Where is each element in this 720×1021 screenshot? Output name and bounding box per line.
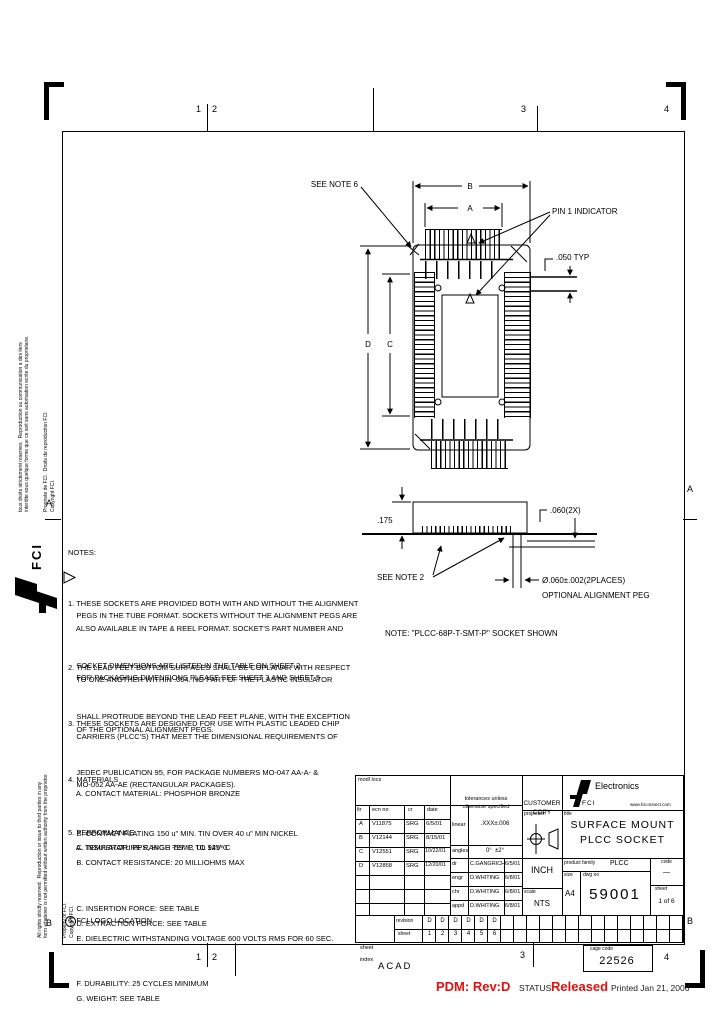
scale-label: scale bbox=[524, 890, 536, 896]
zone-left-b: B bbox=[46, 918, 52, 928]
note-6-circle-icon bbox=[65, 916, 76, 927]
plcc-side-view: .175 .060(2X) SEE NOTE 2 Ø.060±.002(2PLA… bbox=[355, 475, 690, 650]
title-label: title bbox=[564, 812, 572, 818]
zone-top-2: 2 bbox=[212, 104, 217, 114]
pin-scallops-top bbox=[425, 261, 502, 279]
code-label: code bbox=[650, 860, 683, 866]
tolerance-heading: tolerances unlessotherwise specified bbox=[452, 779, 520, 819]
size-label: size bbox=[564, 873, 573, 879]
product-family-label: product family bbox=[564, 861, 595, 867]
rev-row: 6/5/01 bbox=[426, 821, 442, 827]
pdm-rev-label: PDM: Rev:D bbox=[436, 980, 510, 994]
acad-label: ACAD bbox=[378, 962, 412, 972]
dim-label-optional-peg: OPTIONAL ALIGNMENT PEG bbox=[542, 591, 650, 600]
side-view-caption: NOTE: "PLCC-68P-T-SMT-P" SOCKET SHOWN bbox=[385, 629, 558, 638]
rev-row: SRG bbox=[406, 863, 419, 869]
trim-mark-tl bbox=[44, 82, 49, 120]
fci-side-logo: FCI bbox=[10, 523, 62, 615]
index-rev-cell: D bbox=[462, 918, 475, 925]
pin-scallops-bottom bbox=[431, 419, 508, 439]
zone-top-1: 1 bbox=[196, 104, 201, 114]
linear-label: linear bbox=[452, 822, 465, 828]
dwg-no-value: 59001 bbox=[580, 887, 650, 904]
rev-row: C bbox=[359, 849, 363, 855]
brand-abbr: FCI bbox=[582, 800, 595, 807]
cage-code-value: 22526 bbox=[584, 955, 650, 967]
approval-date: 6/8/01 bbox=[505, 889, 520, 895]
notes-heading: NOTES: bbox=[68, 549, 96, 557]
dim-label-peg-dia: Ø.060±.002(2PLACES) bbox=[542, 576, 625, 585]
index-rev-cell: D bbox=[436, 918, 449, 925]
zone-tick bbox=[537, 106, 538, 131]
rev-row: SRG bbox=[406, 835, 419, 841]
approval-role: dr bbox=[452, 861, 457, 867]
index-rev-cell: D bbox=[488, 918, 501, 925]
index-sheet-cell: 2 bbox=[436, 931, 449, 938]
rev-row: A bbox=[359, 821, 363, 827]
projection-label: projection bbox=[524, 812, 546, 818]
linear-value: .XXX±.006 bbox=[469, 821, 521, 828]
approval-role: chr bbox=[452, 889, 460, 895]
dim-label-050-typ: .050 TYP bbox=[556, 253, 589, 262]
index-sheet-cell: 4 bbox=[462, 931, 475, 938]
customer-copy-label: CUSTOMERCOPY bbox=[523, 781, 561, 826]
approval-name: D.WHITING bbox=[470, 889, 499, 895]
copyright-text-fr: tous droits strictement reserves. Reprod… bbox=[5, 140, 63, 512]
status-value: Released bbox=[551, 980, 608, 994]
trim-mark-br bbox=[700, 950, 705, 986]
index-sheet-label: sheet bbox=[398, 932, 410, 938]
drawing-sheet: { "zones": {"t1":"1","t2":"2","t3":"3","… bbox=[0, 0, 720, 1012]
projection-symbol-icon bbox=[522, 822, 562, 856]
pin-comb-side bbox=[422, 526, 512, 535]
index-sheet-cell: 6 bbox=[488, 931, 501, 938]
rev-row: V12144 bbox=[372, 835, 392, 841]
approval-date: 6/8/01 bbox=[505, 903, 520, 909]
fci-logo-text: FCI bbox=[29, 543, 44, 570]
approval-date: 6/8/01 bbox=[505, 875, 520, 881]
rev-row: D bbox=[359, 863, 363, 869]
trim-mark-bl bbox=[49, 983, 69, 988]
rev-row: 10/22/01 bbox=[425, 849, 446, 855]
approval-role: engr bbox=[452, 875, 463, 881]
printed-date: Printed Jan 21, 2006 bbox=[611, 984, 689, 993]
trim-mark-tr bbox=[681, 82, 686, 120]
zone-bottom-4: 4 bbox=[664, 952, 669, 962]
dwg-no-label: dwg no bbox=[583, 873, 599, 879]
rev-row: V11875 bbox=[372, 821, 392, 827]
sheet-index-label: sheetindex bbox=[360, 918, 373, 978]
angles-label: angles bbox=[452, 848, 468, 854]
product-family-value: PLCC bbox=[610, 860, 629, 868]
index-sheet-cell: 1 bbox=[423, 931, 436, 938]
rev-row: SRG bbox=[406, 849, 419, 855]
mod-locs-label: modl locs bbox=[358, 777, 381, 783]
dim-label-060-2x: .060(2X) bbox=[550, 506, 581, 515]
socket-cavity bbox=[442, 295, 498, 397]
zone-top-3: 3 bbox=[521, 104, 526, 114]
zone-bottom-3: 3 bbox=[520, 950, 525, 960]
dim-label-c: C bbox=[387, 340, 393, 349]
dim-label-see-note-2: SEE NOTE 2 bbox=[377, 573, 425, 582]
index-sheet-cell: 3 bbox=[449, 931, 462, 938]
zone-left-a: A bbox=[46, 498, 52, 508]
units-label: INCH bbox=[522, 866, 562, 876]
dim-label-b: B bbox=[467, 182, 472, 191]
pin-comb-top bbox=[425, 229, 502, 260]
index-rev-cell: D bbox=[449, 918, 462, 925]
rev-row: B bbox=[359, 835, 363, 841]
rev-row: V12858 bbox=[372, 863, 392, 869]
fci-logo-icon bbox=[13, 575, 59, 615]
note-6: 6. FCI LOGO LOCATION bbox=[68, 917, 152, 925]
approval-name: D.WHITING bbox=[470, 875, 499, 881]
approval-name: D.WHITING bbox=[470, 903, 499, 909]
approval-date: 6/5/01 bbox=[505, 861, 520, 867]
status-label: STATUS: bbox=[519, 984, 554, 993]
rev-col-ltr: ltr bbox=[357, 807, 362, 813]
brand-site: www.fciconnect.com bbox=[630, 803, 671, 808]
rev-col-ecn: ecn no bbox=[372, 807, 389, 813]
rev-row: SRG bbox=[406, 821, 419, 827]
trim-mark-tl bbox=[44, 82, 64, 87]
zone-tick bbox=[45, 519, 61, 520]
brand-name: Electronics bbox=[595, 782, 639, 792]
approval-name: C.GANGRICH bbox=[470, 861, 505, 867]
code-value: — bbox=[650, 869, 683, 877]
rev-row: V12551 bbox=[372, 849, 392, 855]
rev-row: 12/20/01 bbox=[425, 863, 446, 869]
dim-label-pin1-indicator: PIN 1 INDICATOR bbox=[552, 207, 618, 216]
note-1-flag-icon bbox=[63, 571, 76, 584]
rev-col-cr: cr bbox=[408, 807, 413, 813]
sheet-value: 1 of 6 bbox=[650, 898, 683, 905]
pin-stack-left bbox=[414, 272, 435, 418]
pin-comb-bottom bbox=[431, 441, 508, 469]
index-rev-cell: D bbox=[423, 918, 436, 925]
drawing-title-line1: SURFACE MOUNT bbox=[562, 820, 683, 832]
approval-role: appd bbox=[452, 903, 464, 909]
sheet-label: sheet bbox=[655, 887, 667, 893]
size-value: A4 bbox=[565, 890, 575, 899]
zone-tick bbox=[373, 88, 374, 131]
rev-col-date: date bbox=[427, 807, 438, 813]
scale-value: NTS bbox=[522, 900, 562, 909]
dim-label-175: .175 bbox=[377, 516, 393, 525]
cage-code-box: cage code 22526 bbox=[583, 945, 653, 972]
angles-value: 0° ±2° bbox=[469, 848, 521, 855]
rev-row: 8/15/01 bbox=[426, 835, 445, 841]
zone-top-4: 4 bbox=[664, 104, 669, 114]
dim-label-a: A bbox=[467, 204, 473, 213]
note-5-performance: 5. PERFORMANCE A. TEMPERATURE RANGE -55°… bbox=[68, 795, 333, 1021]
zone-right-b: B bbox=[687, 916, 693, 926]
dim-label-see-note-6: SEE NOTE 6 bbox=[311, 180, 359, 189]
index-rev-cell: D bbox=[475, 918, 488, 925]
index-sheet-cell: 5 bbox=[475, 931, 488, 938]
pin-stack-right bbox=[504, 272, 531, 418]
dim-label-d: D bbox=[365, 340, 371, 349]
zone-tick bbox=[207, 104, 208, 131]
cage-code-label: cage code bbox=[590, 947, 613, 953]
drawing-title-line2: PLCC SOCKET bbox=[562, 835, 683, 847]
zone-tick bbox=[533, 943, 534, 967]
index-revision-label: revision bbox=[396, 919, 413, 925]
